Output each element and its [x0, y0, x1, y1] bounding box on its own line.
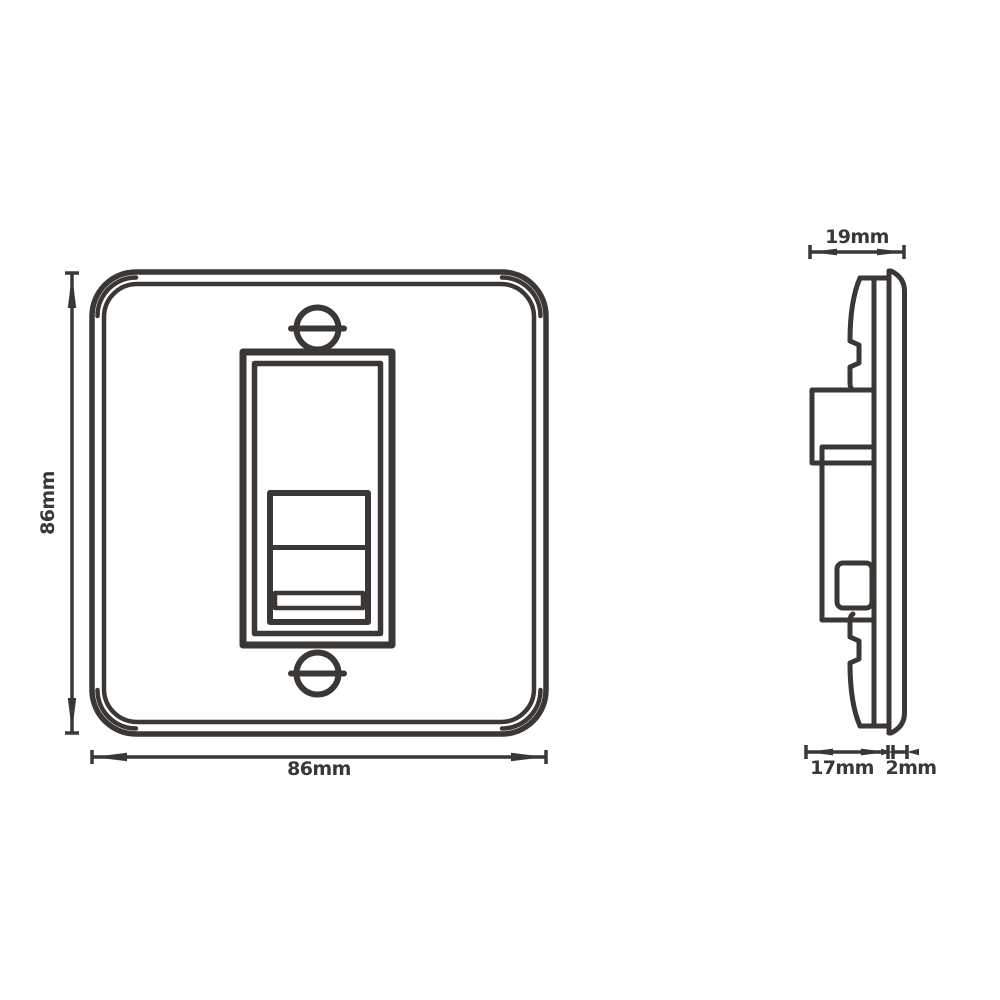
- screw-bottom: [291, 653, 344, 695]
- mechanism-depth-dimension-label: 17mm: [810, 757, 874, 779]
- side-view: [812, 271, 905, 733]
- faceplate-outline: [92, 272, 546, 734]
- arrow-right-icon: [511, 753, 545, 761]
- arrow-right-icon: [877, 249, 903, 256]
- side-mechanism-lower: [822, 447, 874, 620]
- screw-top: [291, 308, 344, 350]
- arrow-down-icon: [68, 698, 76, 732]
- dimension-arrowheads: [68, 249, 919, 762]
- arrow-left-icon: [807, 749, 833, 756]
- corner-accent-arcs: [98, 278, 541, 729]
- total-depth-dimension-label: 19mm: [825, 226, 889, 248]
- technical-drawing: 86mm 86mm 19mm 17mm 2mm: [0, 0, 1000, 1000]
- side-terminal-block: [837, 563, 872, 608]
- arrow-up-icon: [68, 274, 76, 308]
- width-dimension-label: 86mm: [287, 758, 351, 780]
- arrow-left-icon: [907, 749, 919, 755]
- side-bottom-clip: [850, 614, 860, 726]
- height-dimension-label: 86mm: [37, 471, 59, 535]
- dimension-height-line: [65, 273, 79, 733]
- shutter-slot: [275, 593, 363, 608]
- socket-aperture: [270, 493, 368, 622]
- dimension-lines: [65, 245, 907, 764]
- dimension-labels: 86mm 86mm 19mm 17mm 2mm: [37, 226, 937, 780]
- side-top-clip: [850, 278, 860, 390]
- arrow-left-icon: [811, 249, 837, 256]
- front-view: [92, 272, 546, 734]
- plate-thickness-dimension-label: 2mm: [885, 757, 936, 779]
- arrow-left-icon: [93, 753, 127, 761]
